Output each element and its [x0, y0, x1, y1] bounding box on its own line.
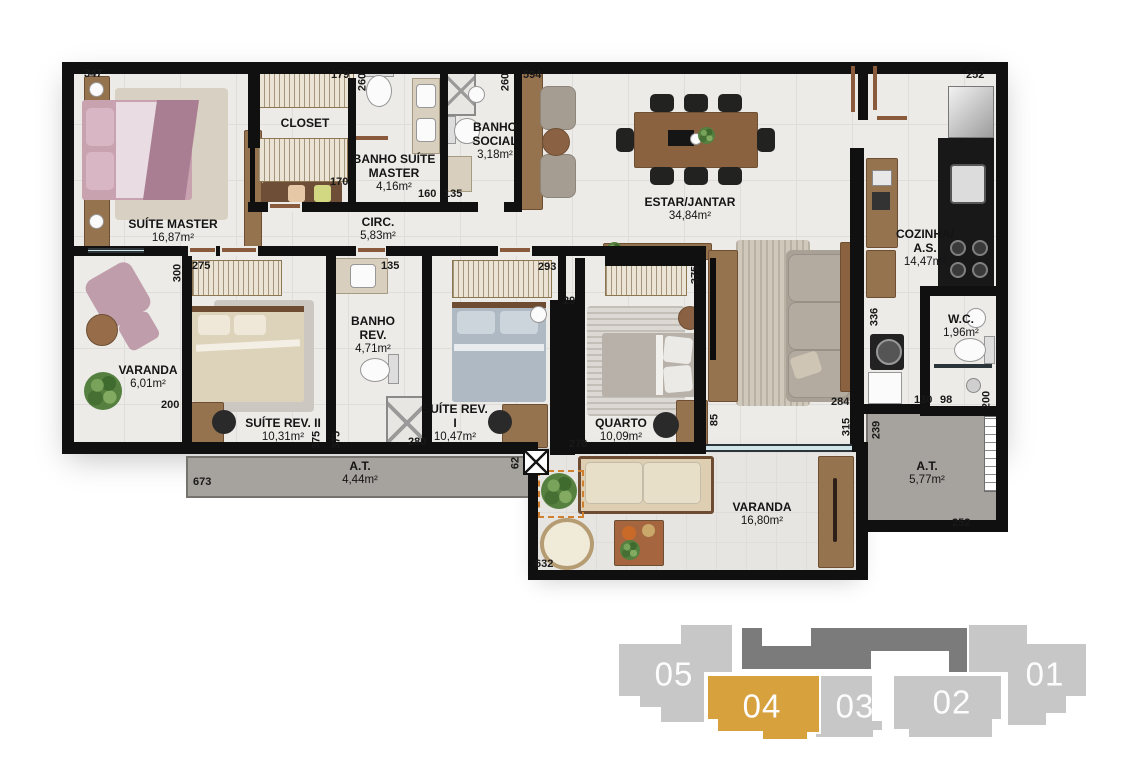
- headboard: [452, 302, 546, 308]
- dimension-label: 260: [501, 73, 512, 91]
- sofa-cushion: [585, 462, 643, 504]
- room-name: COZINHA/ A.S.: [890, 228, 960, 256]
- wall: [248, 62, 260, 148]
- room-label-banho-social: BANHO SOCIAL 3,18m²: [459, 121, 531, 162]
- dimension-label: 347: [84, 69, 102, 80]
- wardrobe: [452, 260, 552, 298]
- sink-icon: [416, 118, 436, 142]
- dining-chair: [684, 167, 708, 185]
- keyplan-label-03[interactable]: 03: [836, 690, 875, 723]
- console-handle-icon: [833, 478, 837, 542]
- door-leaf: [356, 136, 388, 140]
- room-name: SUÍTE MASTER: [113, 218, 233, 232]
- washer-door-icon: [876, 339, 902, 365]
- blanket-fold: [454, 344, 544, 351]
- dimension-label: 336: [870, 308, 881, 326]
- keyplan-label-01[interactable]: 01: [1026, 658, 1065, 691]
- room-area: 10,47m²: [420, 431, 490, 444]
- wall: [920, 406, 1008, 416]
- dining-chair: [684, 94, 708, 112]
- dimension-label: 252: [952, 518, 970, 529]
- toilet-icon: [954, 338, 986, 362]
- stove-burner-icon: [972, 262, 988, 278]
- pillow: [663, 336, 694, 365]
- room-area: 5,83m²: [344, 230, 412, 243]
- room-area: 16,87m²: [113, 232, 233, 245]
- room-name: QUARTO: [571, 417, 671, 431]
- door-leaf: [190, 248, 215, 252]
- room-label-circ: CIRC. 5,83m²: [344, 216, 412, 243]
- sink-icon: [416, 84, 436, 108]
- room-label-varanda-suite: VARANDA 6,01m²: [98, 364, 198, 391]
- stove-burner-icon: [972, 240, 988, 256]
- plant-icon: [698, 127, 715, 144]
- sink-icon: [468, 86, 485, 103]
- window-glass: [706, 444, 852, 452]
- room-name: A.T.: [320, 460, 400, 474]
- outdoor-sofa: [578, 456, 714, 514]
- room-name: VARANDA: [702, 501, 822, 515]
- dining-chair: [757, 128, 775, 152]
- entry-door-icon: [523, 449, 549, 475]
- dimension-label: 375: [312, 431, 323, 449]
- cabinet-detail: [872, 170, 892, 186]
- storage-box: [288, 185, 305, 202]
- sink-icon: [350, 264, 376, 288]
- room-name: ESTAR/JANTAR: [610, 196, 770, 210]
- toilet-icon: [360, 358, 390, 382]
- room-area: 10,31m²: [225, 431, 341, 444]
- desk-chair: [488, 410, 512, 434]
- pillow: [234, 315, 266, 335]
- plant-icon: [620, 540, 640, 560]
- room-name: SUÍTE REV. II: [225, 417, 341, 431]
- tv-icon: [710, 258, 716, 360]
- window-glass: [88, 248, 144, 253]
- room-area: 16,80m²: [702, 515, 822, 528]
- dimension-label: 239: [872, 421, 883, 439]
- shower-drain-icon: [966, 378, 981, 393]
- dimension-label: 29: [563, 296, 575, 307]
- dimension-label: 375: [332, 431, 343, 449]
- dimension-label: 284: [831, 397, 849, 408]
- room-name: W.C.: [928, 313, 994, 327]
- plant-icon: [541, 473, 577, 509]
- bed-master: [82, 100, 192, 200]
- armchair: [540, 86, 576, 130]
- room-name: CLOSET: [265, 117, 345, 131]
- bed: [602, 333, 700, 397]
- wall: [62, 442, 192, 454]
- room-label-closet: CLOSET: [265, 117, 345, 131]
- lamp-icon: [89, 214, 104, 229]
- wall: [856, 520, 1008, 532]
- lamp-icon: [89, 82, 104, 97]
- room-area: 34,84m²: [610, 210, 770, 223]
- bowl-icon: [622, 526, 636, 540]
- dimension-label: 98: [940, 395, 952, 406]
- room-label-suite-master: SUÍTE MASTER 16,87m²: [113, 218, 233, 245]
- toilet-icon: [366, 75, 392, 107]
- wall: [858, 62, 868, 120]
- dimension-label: 179: [331, 70, 349, 81]
- wardrobe: [605, 262, 687, 296]
- dimension-label: 200: [161, 400, 179, 411]
- blanket-fold: [656, 335, 663, 395]
- blanket-fold: [196, 339, 300, 351]
- cabinet-detail: [872, 192, 890, 210]
- sink-icon: [950, 164, 986, 204]
- room-area: 3,18m²: [459, 149, 531, 162]
- coffee-table: [542, 128, 570, 156]
- dining-chair: [718, 167, 742, 185]
- dimension-label: 135: [444, 189, 462, 200]
- dimension-label: 62: [511, 457, 522, 469]
- dimension-label: 375: [691, 266, 702, 284]
- wall: [850, 148, 864, 452]
- pillow: [86, 152, 114, 190]
- wall: [182, 246, 192, 454]
- room-label-at-2: A.T. 5,77m²: [887, 460, 967, 487]
- dimension-label: 135: [381, 261, 399, 272]
- room-label-wc: W.C. 1,96m²: [928, 313, 994, 340]
- pillow: [198, 315, 230, 335]
- door-leaf: [270, 204, 300, 208]
- dimension-label: 275: [192, 261, 210, 272]
- room-area: 5,77m²: [887, 474, 967, 487]
- dimension-label: 130: [914, 395, 932, 406]
- dimension-label: 280: [408, 437, 426, 448]
- dimension-label: 270: [569, 439, 587, 450]
- dimension-label: 160: [418, 189, 436, 200]
- wall: [996, 62, 1008, 532]
- room-area: 14,47m²: [890, 256, 960, 269]
- room-name: BANHO SOCIAL: [459, 121, 531, 149]
- room-name: SUÍTE REV. I: [420, 403, 490, 431]
- storage-box: [314, 185, 331, 202]
- keyplan-label-05[interactable]: 05: [655, 658, 694, 691]
- room-label-suite-rev-2: SUÍTE REV. II 10,31m²: [225, 417, 341, 444]
- dimension-label: 293: [538, 262, 556, 273]
- door-leaf: [358, 248, 385, 252]
- room-label-varanda-social: VARANDA 16,80m²: [702, 501, 822, 528]
- dining-chair: [650, 167, 674, 185]
- dimension-label: 170: [330, 177, 348, 188]
- tv-icon: [250, 142, 255, 206]
- dining-chair: [650, 94, 674, 112]
- pillow: [663, 365, 693, 393]
- pillow: [457, 311, 495, 334]
- dimension-label: 300: [173, 264, 184, 282]
- room-label-estar-jantar: ESTAR/JANTAR 34,84m²: [610, 196, 770, 223]
- laundry-tank-icon: [868, 372, 902, 404]
- room-name: VARANDA: [98, 364, 198, 378]
- door-leaf: [222, 248, 256, 252]
- room-area: 4,44m²: [320, 474, 400, 487]
- dimension-label: 594: [523, 70, 541, 81]
- shower-glass: [934, 364, 992, 368]
- dimension-label: 315: [842, 418, 853, 436]
- door-leaf: [851, 66, 855, 112]
- door-opening: [585, 256, 605, 266]
- pillow: [86, 108, 114, 146]
- door-leaf: [873, 66, 877, 110]
- door-leaf: [500, 248, 530, 252]
- room-name: CIRC.: [344, 216, 412, 230]
- dimension-label: 260: [358, 73, 369, 91]
- sofa-cushion: [643, 462, 701, 504]
- wall: [186, 246, 706, 256]
- dimension-label: 252: [966, 70, 984, 81]
- nightstand: [530, 306, 547, 323]
- room-area: 1,96m²: [928, 327, 994, 340]
- room-name: A.T.: [887, 460, 967, 474]
- keyplan-core: [741, 627, 968, 673]
- room-name: BANHO SUÍTE MASTER: [346, 153, 442, 181]
- dimension-label: 632: [535, 559, 553, 570]
- floorplan-page: SUÍTE MASTER 16,87m² CLOSET BANHO SUÍTE …: [0, 0, 1140, 784]
- headboard: [192, 306, 304, 312]
- room-name: BANHO REV.: [336, 315, 410, 343]
- keyplan-label-04[interactable]: 04: [743, 690, 782, 723]
- dining-chair: [616, 128, 634, 152]
- fridge-icon: [948, 86, 994, 138]
- wall: [528, 570, 868, 580]
- room-area: 4,71m²: [336, 343, 410, 356]
- door-leaf: [877, 116, 907, 120]
- wall: [926, 286, 1008, 296]
- dimension-label: 673: [193, 477, 211, 488]
- side-table: [86, 314, 118, 346]
- keyplan-label-02[interactable]: 02: [933, 686, 972, 719]
- room-label-at-1: A.T. 4,44m²: [320, 460, 400, 487]
- basket-icon: [642, 524, 655, 537]
- room-label-suite-rev-1: SUÍTE REV. I 10,47m²: [420, 403, 490, 444]
- wall: [62, 62, 74, 454]
- room-label-cozinha: COZINHA/ A.S. 14,47m²: [890, 228, 960, 269]
- armchair: [540, 154, 576, 198]
- room-area: 6,01m²: [98, 378, 198, 391]
- dimension-label: 200: [982, 391, 993, 409]
- room-label-banho-rev: BANHO REV. 4,71m²: [336, 315, 410, 356]
- bed: [192, 306, 304, 402]
- door-opening: [478, 202, 504, 212]
- dimension-label: 85: [710, 414, 721, 426]
- wall: [856, 442, 868, 580]
- dining-chair: [718, 94, 742, 112]
